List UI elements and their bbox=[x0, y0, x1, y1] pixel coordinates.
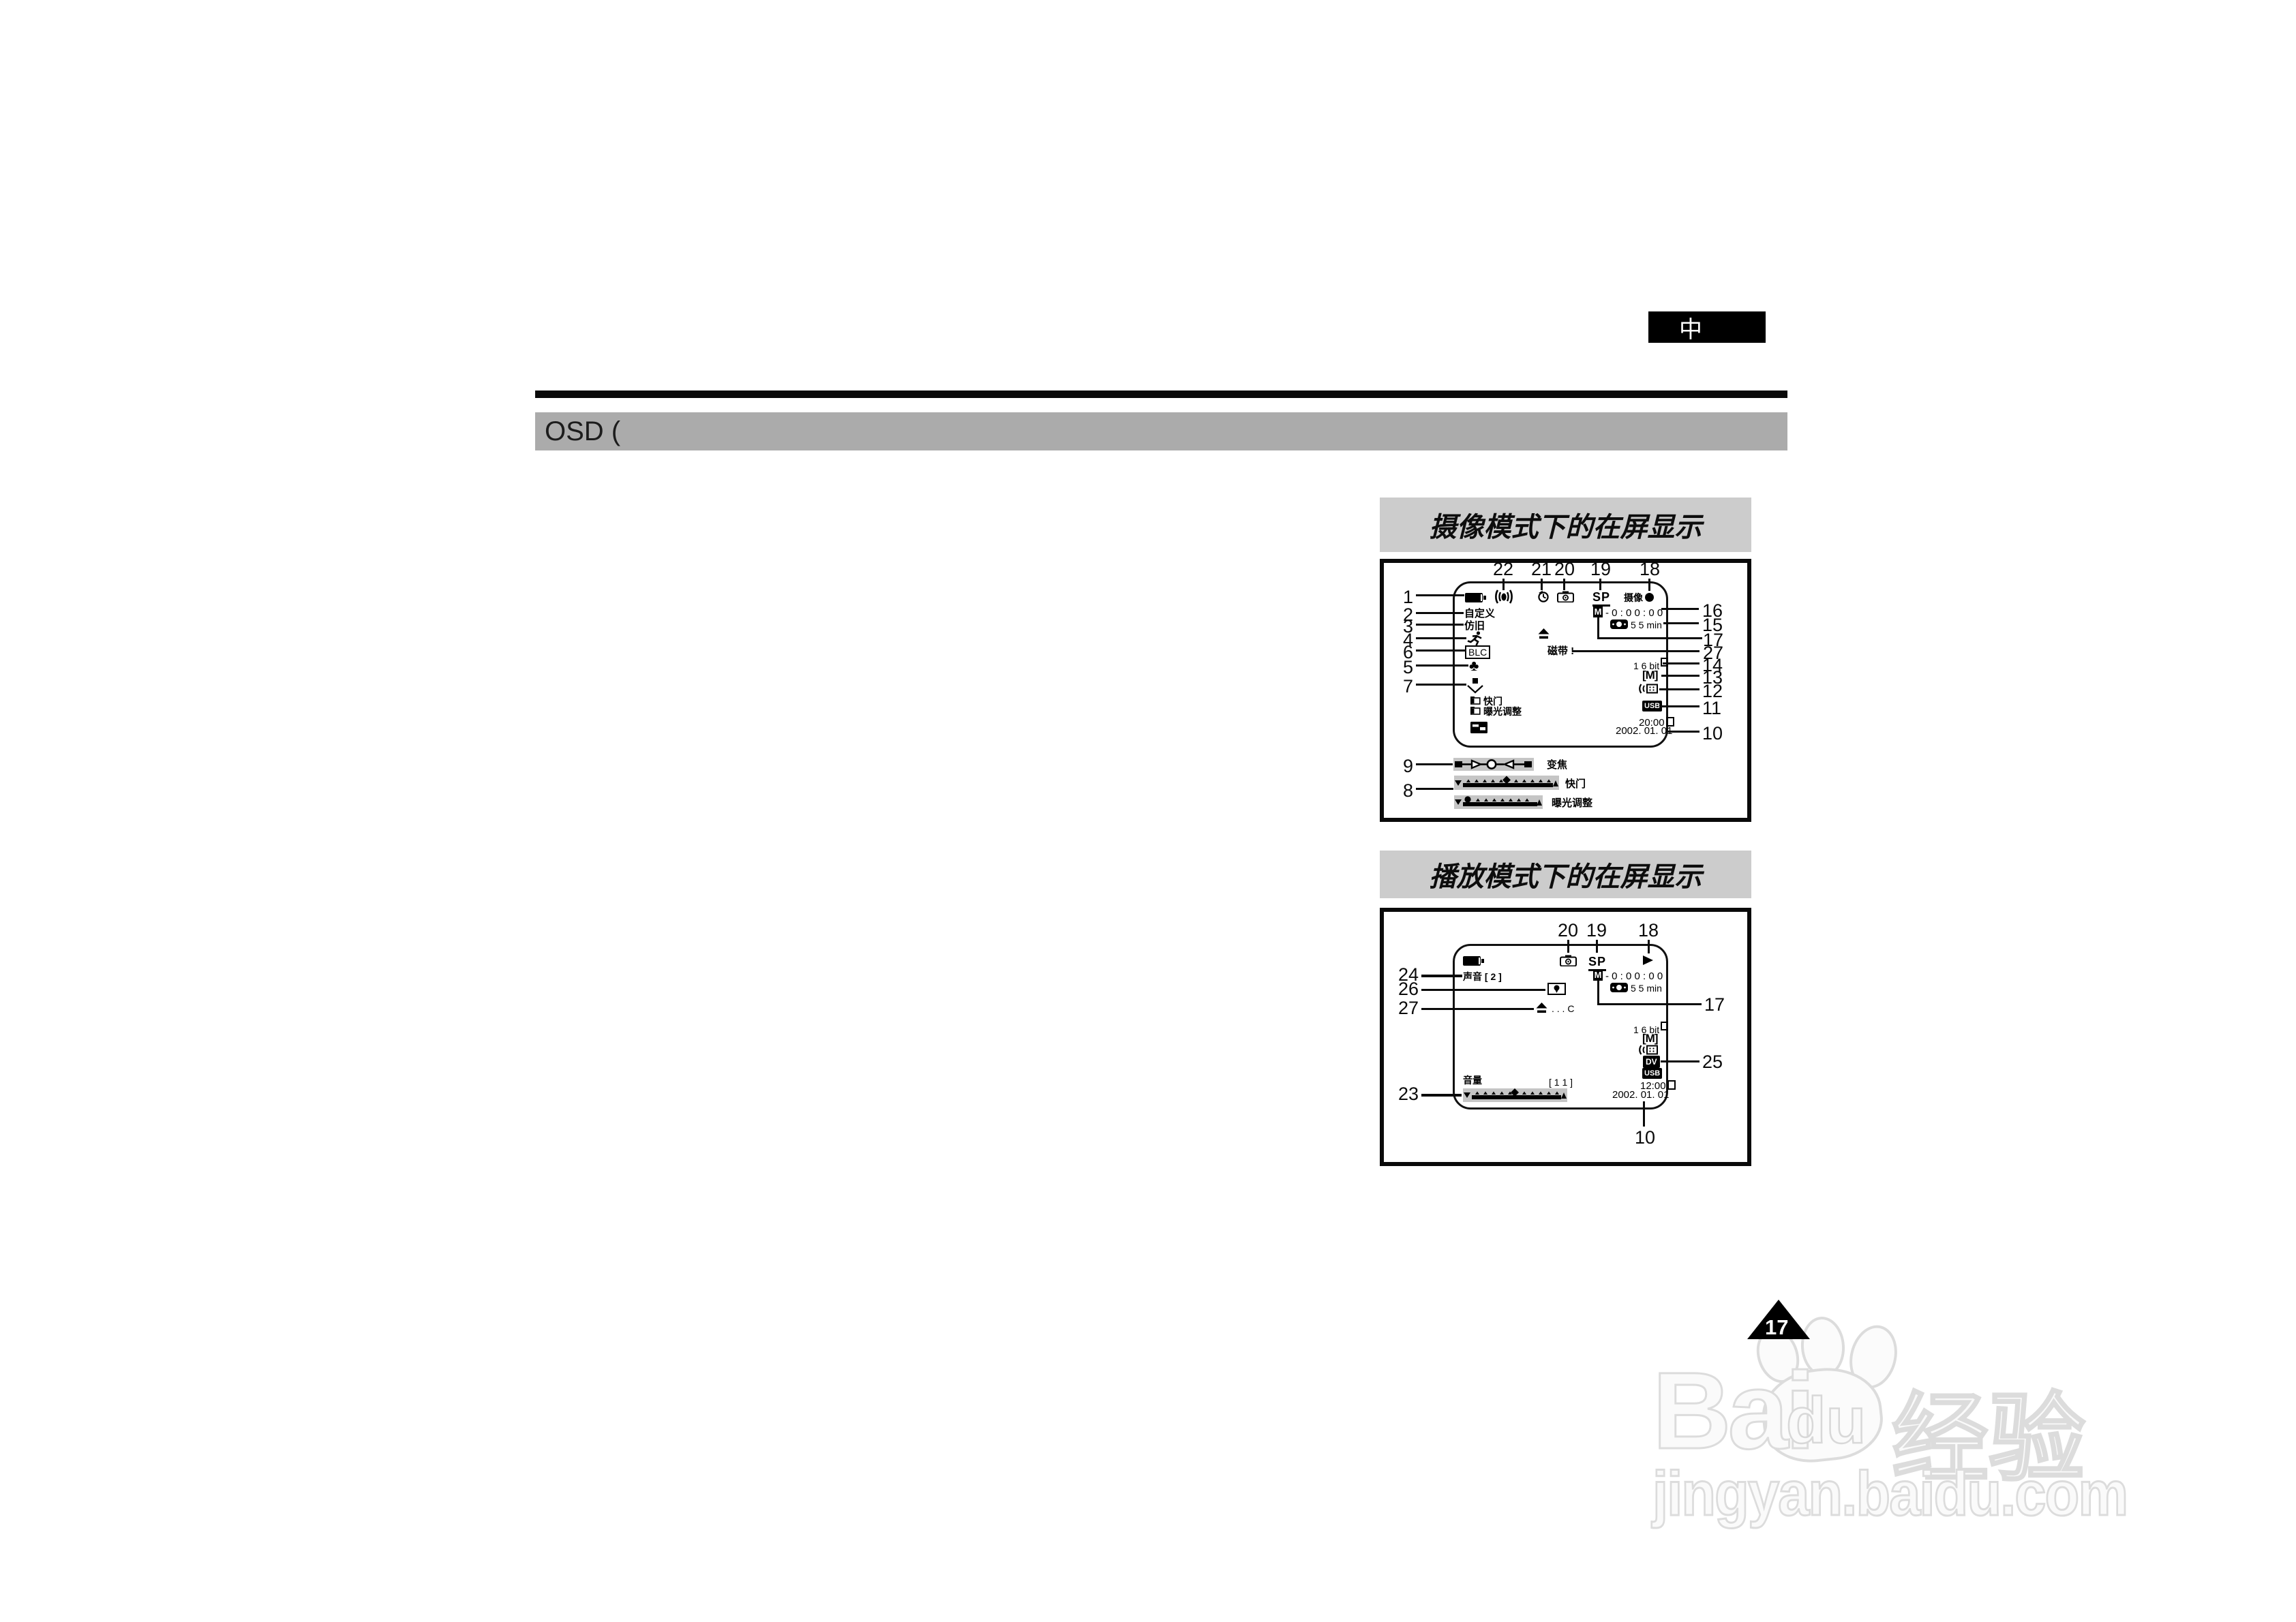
callout-7: 7 bbox=[1393, 677, 1413, 696]
dv-badge: DV bbox=[1643, 1056, 1660, 1068]
callout-line bbox=[1661, 675, 1700, 677]
shutter-bar-icon bbox=[1454, 776, 1559, 790]
callout-line bbox=[1648, 940, 1650, 953]
callout-1: 1 bbox=[1393, 588, 1413, 607]
callout-line bbox=[1661, 608, 1699, 610]
language-badge-label: 中 bbox=[1679, 311, 1702, 344]
volume-value: [ 1 1 ] bbox=[1549, 1077, 1573, 1087]
volume-bar-icon bbox=[1463, 1088, 1567, 1102]
callout-line bbox=[1421, 1094, 1462, 1097]
sp-mode-label: SP bbox=[1588, 955, 1606, 971]
callout-line bbox=[1659, 705, 1700, 707]
callout-19: 19 bbox=[1586, 921, 1607, 940]
sound-channel-label: 声音 [ 2 ] bbox=[1463, 972, 1502, 981]
exposure-bar-icon bbox=[1454, 795, 1543, 809]
dse-sepia-label: 仿旧 bbox=[1464, 621, 1485, 631]
callout-18: 18 bbox=[1640, 560, 1660, 579]
callout-9: 9 bbox=[1393, 757, 1413, 776]
menu-exposure-label: 曝光调整 bbox=[1483, 707, 1522, 716]
callout-line bbox=[1416, 637, 1466, 639]
clock-date: 2002. 01. 01 bbox=[1616, 726, 1672, 736]
camera-osd-title: 摄像模式下的在屏显示 bbox=[1380, 498, 1751, 552]
volume-bar bbox=[1463, 1088, 1567, 1102]
callout-26: 26 bbox=[1394, 980, 1419, 998]
callout-line bbox=[1421, 989, 1545, 991]
callout-line bbox=[1416, 763, 1453, 765]
tape-icon bbox=[1610, 982, 1629, 993]
watermark-url: jingyan.baidu.com bbox=[1652, 1458, 2127, 1530]
tape-icon bbox=[1610, 619, 1629, 630]
photo-camera-icon bbox=[1560, 955, 1577, 966]
callout-20: 20 bbox=[1554, 560, 1575, 579]
zoom-bar-icon bbox=[1453, 758, 1534, 771]
callout-line bbox=[1416, 612, 1464, 614]
callout-line bbox=[1599, 579, 1601, 590]
manual-page: Bai du 经验 jingyan.baidu.com 中 OSD ( 摄像模式… bbox=[0, 0, 2296, 1622]
callout-line bbox=[1502, 579, 1505, 590]
callout-line bbox=[1661, 1060, 1700, 1062]
callout-line bbox=[1563, 579, 1565, 590]
zoom-bar bbox=[1453, 758, 1534, 771]
menu-shutter-label: 快门 bbox=[1483, 697, 1502, 706]
clock-square-icon bbox=[1667, 1080, 1676, 1090]
dse-custom-label: 自定义 bbox=[1464, 609, 1495, 619]
osd-section-header-label: OSD ( bbox=[545, 416, 620, 447]
sp-mode-label: SP bbox=[1592, 591, 1610, 607]
callout-5: 5 bbox=[1393, 658, 1413, 677]
folder-icon bbox=[1470, 707, 1481, 715]
callout-21: 21 bbox=[1531, 560, 1552, 579]
audio-mode-square-icon bbox=[1661, 1022, 1668, 1030]
watermark-brand-du: du bbox=[1786, 1383, 1866, 1458]
runner-icon bbox=[1467, 631, 1484, 646]
callout-line bbox=[1416, 624, 1464, 626]
callout-line bbox=[1416, 664, 1468, 667]
tape-warning-label: 磁带 ! bbox=[1547, 646, 1574, 656]
battery-icon bbox=[1463, 955, 1484, 966]
tape-counter: - 0 : 0 0 : 0 0 bbox=[1605, 971, 1663, 981]
callout-line bbox=[1416, 684, 1466, 686]
folder-icon bbox=[1470, 697, 1481, 705]
zoom-bar-label: 变焦 bbox=[1547, 760, 1567, 770]
clover-icon: ♣ bbox=[1469, 658, 1479, 673]
callout-17: 17 bbox=[1704, 996, 1725, 1014]
eject-note-label: . . . C bbox=[1552, 1004, 1574, 1013]
callout-line bbox=[1572, 650, 1700, 652]
callout-27: 27 bbox=[1394, 999, 1419, 1017]
callout-20: 20 bbox=[1558, 921, 1578, 940]
stabilizer-icon bbox=[1494, 590, 1513, 604]
language-badge: 中 bbox=[1648, 311, 1766, 343]
callout-line bbox=[1597, 1003, 1702, 1005]
photo-search-icon bbox=[1547, 983, 1566, 995]
memory-counter-badge: M bbox=[1593, 970, 1603, 981]
tape-remaining-label: 5 5 min bbox=[1631, 983, 1662, 993]
self-timer-icon bbox=[1537, 590, 1550, 602]
callout-line bbox=[1597, 980, 1599, 1005]
callout-19: 19 bbox=[1590, 560, 1611, 579]
callout-line bbox=[1541, 579, 1543, 590]
page-number: 17 bbox=[1765, 1317, 1788, 1338]
tape-remaining-label: 5 5 min bbox=[1631, 620, 1662, 630]
callout-line bbox=[1596, 940, 1598, 953]
memory-card-icon bbox=[1470, 722, 1488, 734]
callout-line bbox=[1667, 731, 1700, 733]
callout-line bbox=[1648, 579, 1650, 591]
photo-camera-icon bbox=[1557, 591, 1574, 602]
callout-23: 23 bbox=[1394, 1085, 1419, 1103]
callout-8: 8 bbox=[1393, 782, 1413, 800]
volume-label: 音量 bbox=[1463, 1075, 1482, 1085]
callout-line bbox=[1421, 975, 1462, 977]
tape-counter: - 0 : 0 0 : 0 0 bbox=[1605, 608, 1663, 618]
callout-line bbox=[1416, 594, 1464, 596]
eject-icon bbox=[1538, 628, 1550, 639]
callout-line bbox=[1597, 617, 1599, 639]
callout-22: 22 bbox=[1493, 560, 1513, 579]
camera-osd-title-label: 摄像模式下的在屏显示 bbox=[1430, 505, 1702, 545]
usb-badge: USB bbox=[1642, 1068, 1662, 1079]
callout-line bbox=[1663, 662, 1700, 664]
top-rule bbox=[535, 391, 1787, 398]
audio-dub-icon bbox=[1639, 1044, 1659, 1056]
callout-line bbox=[1421, 1008, 1534, 1010]
callout-18: 18 bbox=[1638, 921, 1659, 940]
callout-line bbox=[1597, 637, 1702, 639]
playback-osd-title-label: 播放模式下的在屏显示 bbox=[1430, 855, 1702, 894]
shutter-bar bbox=[1454, 776, 1559, 790]
wind-cut-icon: [M] bbox=[1642, 669, 1657, 681]
record-label: 摄像 bbox=[1624, 593, 1643, 602]
playback-osd-title: 播放模式下的在屏显示 bbox=[1380, 851, 1751, 898]
callout-line bbox=[1643, 1101, 1645, 1127]
osd-section-header: OSD ( bbox=[535, 412, 1787, 450]
callout-25: 25 bbox=[1702, 1053, 1723, 1071]
callout-line bbox=[1663, 622, 1699, 624]
play-icon bbox=[1643, 955, 1653, 965]
callout-line bbox=[1416, 788, 1453, 790]
exposure-bar-label: 曝光调整 bbox=[1552, 798, 1592, 808]
audio-dub-icon bbox=[1639, 683, 1659, 694]
clock-date: 2002. 01. 01 bbox=[1612, 1090, 1669, 1100]
memory-counter-badge: M bbox=[1593, 607, 1603, 617]
callout-line bbox=[1567, 940, 1569, 953]
shutter-bar-label: 快门 bbox=[1565, 779, 1586, 789]
callout-line bbox=[1416, 649, 1465, 652]
record-dot-icon bbox=[1645, 593, 1654, 602]
exposure-bar bbox=[1454, 795, 1543, 809]
tape-end-icon bbox=[1467, 678, 1483, 694]
callout-line bbox=[1659, 688, 1700, 690]
battery-icon bbox=[1465, 592, 1486, 603]
callout-11: 11 bbox=[1702, 699, 1721, 718]
wind-cut-icon: [M] bbox=[1642, 1032, 1657, 1044]
eject-icon bbox=[1536, 1003, 1547, 1013]
callout-10: 10 bbox=[1635, 1129, 1655, 1147]
callout-10: 10 bbox=[1702, 724, 1723, 743]
